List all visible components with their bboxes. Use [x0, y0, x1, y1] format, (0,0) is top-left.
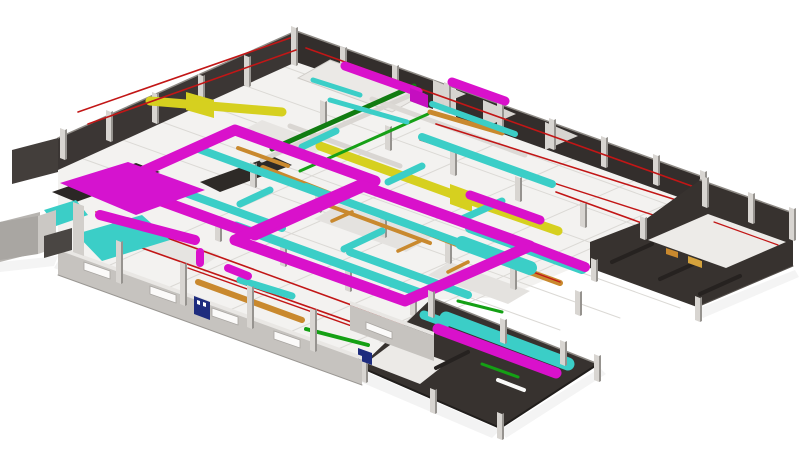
dock-side-wall	[0, 216, 38, 260]
wall-column	[596, 259, 598, 282]
interior-column	[515, 176, 520, 202]
wall-column	[180, 262, 185, 306]
wall-column	[695, 296, 700, 322]
interior-column	[575, 290, 580, 316]
interior-column	[320, 100, 325, 126]
wall-column	[789, 207, 794, 241]
wall-column	[700, 297, 702, 322]
bim-viewport	[0, 0, 800, 450]
wall-column	[554, 119, 556, 150]
wall-column	[106, 110, 111, 142]
corner-column	[296, 27, 298, 66]
wall-column	[794, 208, 796, 241]
wall-column	[185, 263, 187, 306]
wall-column	[315, 309, 317, 352]
interior-column	[580, 291, 582, 316]
wall-column	[60, 128, 65, 160]
wall-column	[640, 216, 645, 240]
bim-model-view	[0, 0, 800, 450]
wall-column	[594, 354, 599, 382]
wall-column	[247, 285, 252, 329]
wall-column	[497, 412, 502, 440]
wall-column	[433, 291, 435, 318]
wall-column	[121, 241, 123, 284]
wall-column	[565, 341, 567, 366]
dock-panel	[73, 202, 84, 256]
wall-column	[310, 308, 315, 352]
wall-column	[707, 177, 709, 208]
wall-column	[244, 55, 249, 87]
wall-column	[599, 355, 601, 382]
wall-column	[560, 340, 565, 366]
wall-column	[502, 413, 504, 440]
wall-column	[753, 193, 755, 224]
wall-column	[549, 118, 554, 150]
interior-column	[585, 203, 587, 228]
interior-column	[450, 150, 455, 176]
wall-column	[65, 129, 67, 160]
wall-column	[249, 56, 251, 87]
wall-column	[500, 318, 505, 344]
wall-column	[116, 240, 121, 284]
wall-column	[653, 154, 658, 186]
interior-column	[580, 202, 585, 228]
wall-column	[505, 319, 507, 344]
wall-column	[645, 217, 647, 240]
interior-column	[385, 125, 390, 151]
wall-column	[748, 192, 753, 224]
wall-column	[702, 176, 707, 208]
wall-column	[252, 286, 254, 329]
interior-column	[455, 151, 457, 176]
wall-column	[601, 136, 606, 168]
wall-column	[591, 258, 596, 282]
wall-column	[658, 155, 660, 186]
dark-wall-west	[12, 138, 58, 184]
corner-column	[291, 26, 296, 66]
wall-column	[435, 389, 437, 414]
wall-column	[430, 388, 435, 414]
wall-column	[606, 137, 608, 168]
wall-column	[428, 290, 433, 318]
interior-column	[520, 177, 522, 202]
